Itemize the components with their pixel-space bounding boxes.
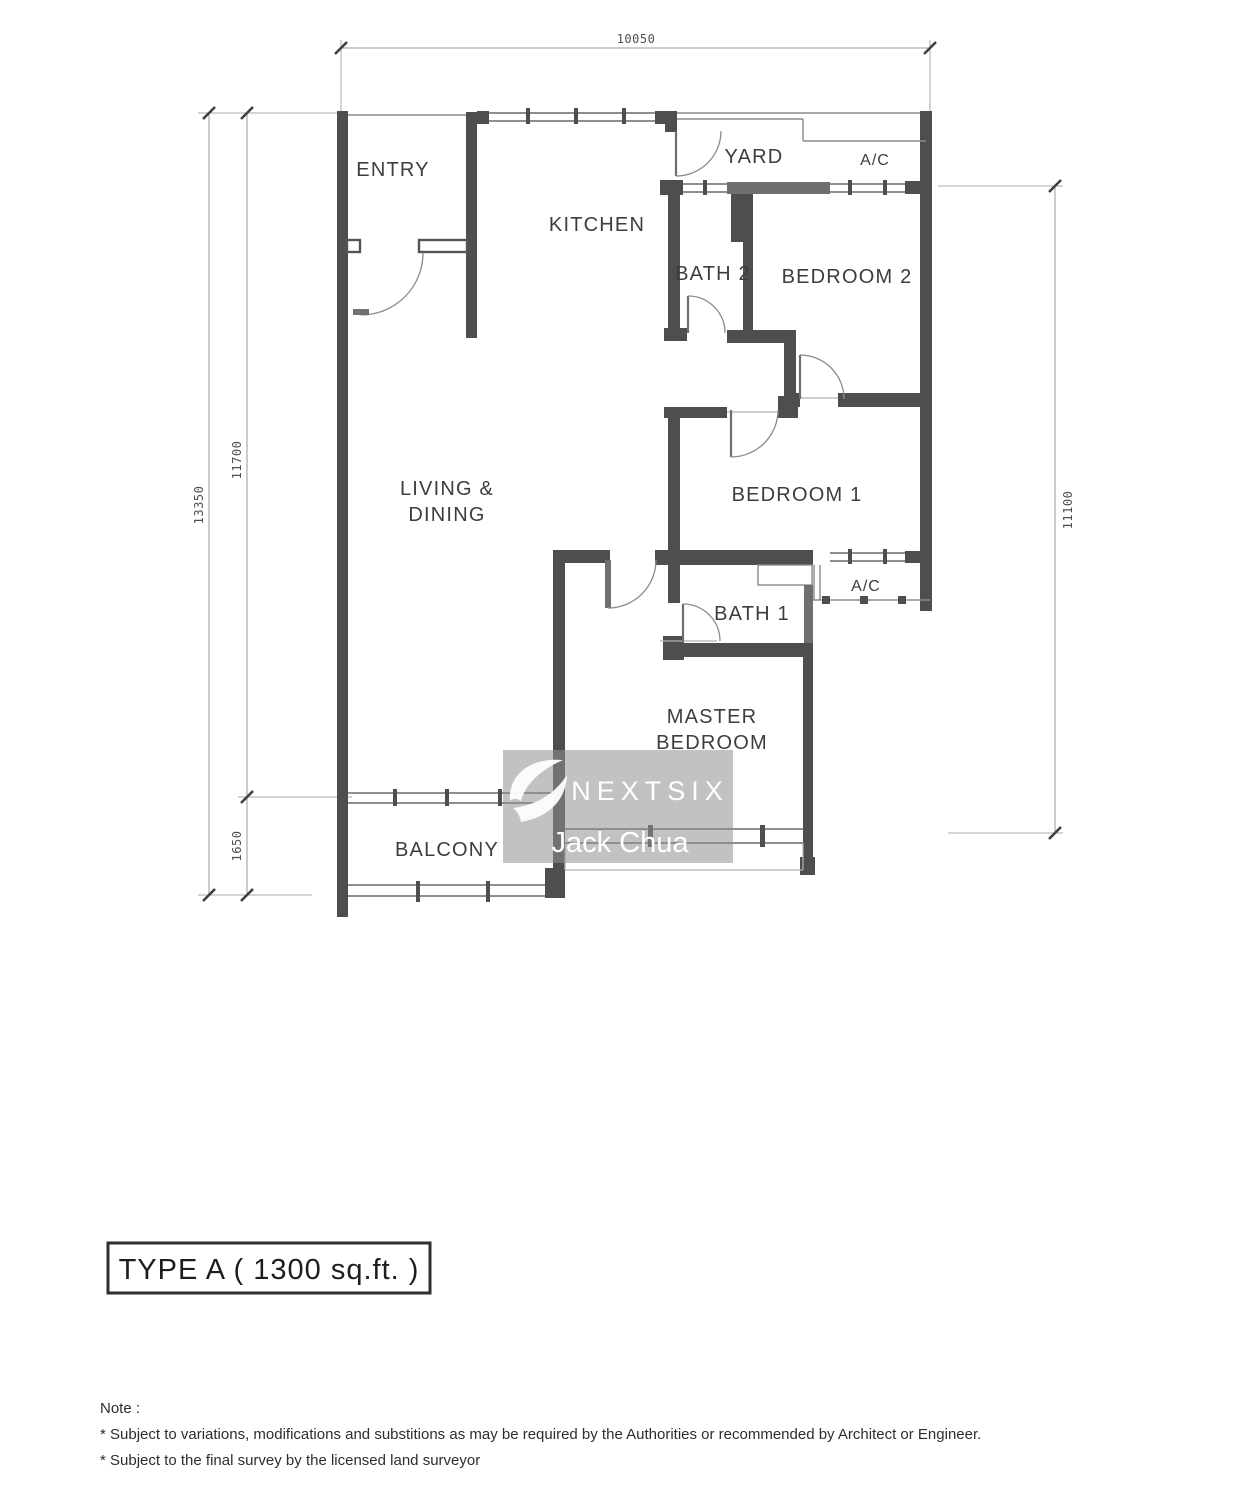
room-label-entry: ENTRY [356, 159, 429, 181]
floor-plan-page: 10050 13350 11700 1650 11100 [0, 0, 1237, 1500]
note-block: Note : * Subject to variations, modifica… [100, 1400, 981, 1469]
room-label-bedroom2: BEDROOM 2 [782, 266, 913, 288]
room-label-ac-top: A/C [860, 152, 890, 169]
room-label-kitchen: KITCHEN [549, 214, 645, 236]
floor-plan-drawing: 10050 13350 11700 1650 11100 [0, 0, 1237, 1500]
dimension-left-outer-label: 13350 [192, 486, 206, 525]
note-line-2: * Subject to the final survey by the lic… [100, 1452, 480, 1469]
room-label-master-line1: MASTER [667, 706, 758, 728]
room-label-bath2: BATH 2 [675, 263, 751, 285]
room-label-living-line1: LIVING & [400, 478, 494, 500]
watermark-brand: NEXTSIX [571, 776, 729, 806]
room-label-bath1: BATH 1 [714, 603, 790, 625]
dimension-left-inner-label: 11700 [230, 441, 244, 480]
dimension-right-label: 11100 [1061, 491, 1075, 530]
note-heading: Note : [100, 1400, 140, 1417]
dimension-left-lower-label: 1650 [230, 831, 244, 862]
room-label-ac-bottom: A/C [851, 578, 881, 595]
note-line-1: * Subject to variations, modifications a… [100, 1426, 981, 1443]
plan-title-box: TYPE A ( 1300 sq.ft. ) [108, 1243, 430, 1293]
room-label-bedroom1: BEDROOM 1 [732, 484, 863, 506]
plan-title: TYPE A ( 1300 sq.ft. ) [119, 1254, 420, 1286]
dimension-top-label: 10050 [617, 32, 656, 46]
room-label-yard: YARD [725, 146, 784, 168]
room-label-balcony: BALCONY [395, 839, 499, 861]
room-label-living-line2: DINING [408, 504, 485, 526]
watermark: NEXTSIX Jack Chua [503, 750, 733, 863]
watermark-agent: Jack Chua [551, 827, 689, 859]
